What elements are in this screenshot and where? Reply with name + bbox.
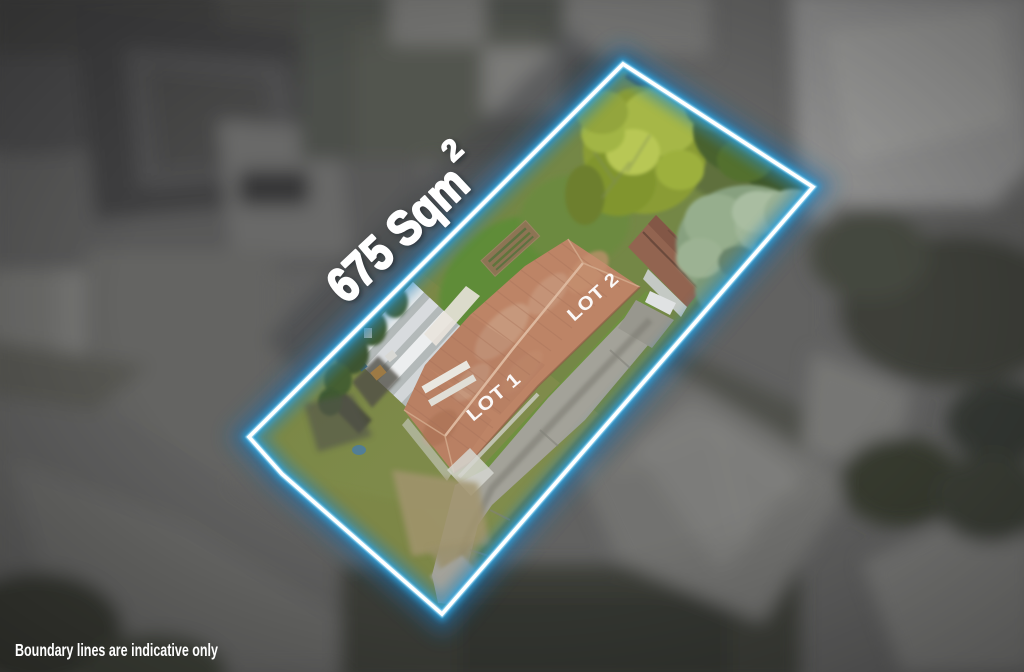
svg-text:Boundary lines are indicative: Boundary lines are indicative only (15, 640, 218, 660)
